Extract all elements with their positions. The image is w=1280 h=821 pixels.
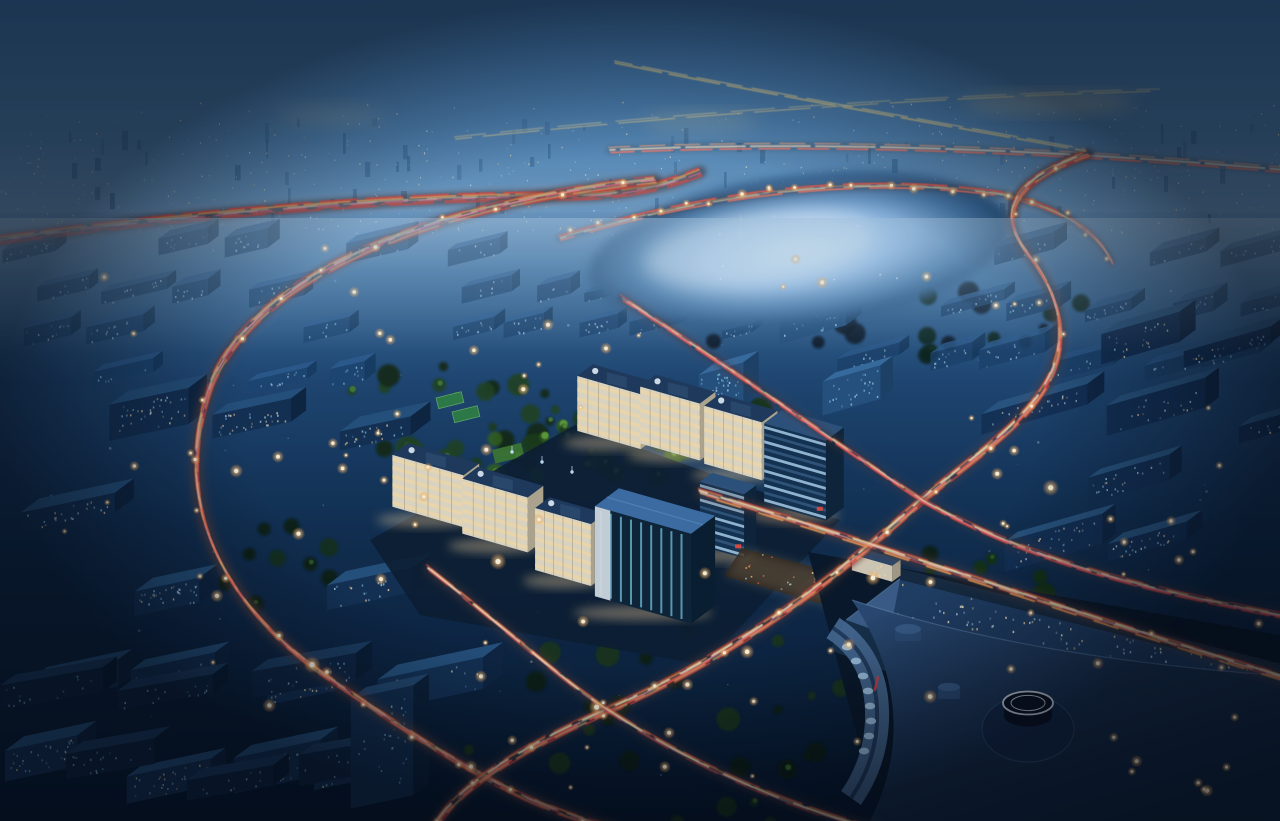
atmosphere-haze [0,0,1280,821]
vignette [0,0,1280,821]
rendering-canvas: H [0,0,1280,821]
night-city-aerial-rendering: H [0,0,1280,821]
